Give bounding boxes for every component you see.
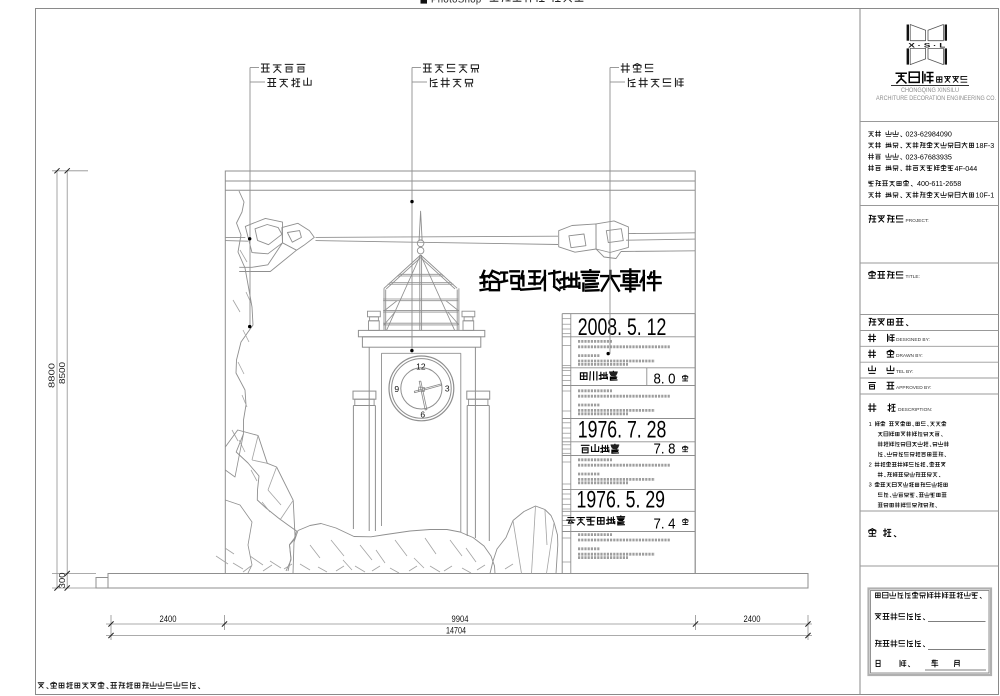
svg-text:DESCRIPTION:: DESCRIPTION: — [898, 407, 932, 413]
svg-text:400-611-2658: 400-611-2658 — [917, 179, 961, 188]
svg-text:300: 300 — [58, 572, 67, 589]
svg-text:7. 4: 7. 4 — [654, 515, 676, 532]
svg-text:023-67683935: 023-67683935 — [906, 152, 952, 161]
svg-text:9: 9 — [394, 384, 399, 394]
svg-text:ARCHITURE DECORATION ENGINEE: ARCHITURE DECORATION ENGINEERING CO. — [876, 95, 996, 102]
svg-text:3: 3 — [869, 483, 872, 489]
svg-text:8500: 8500 — [58, 361, 67, 384]
svg-text:APPROVED BY:: APPROVED BY: — [896, 385, 931, 391]
svg-text:2400: 2400 — [744, 614, 761, 624]
svg-text:023-62984090: 023-62984090 — [906, 130, 952, 139]
svg-text:DRAWN BY:: DRAWN BY: — [896, 353, 923, 359]
svg-text:14704: 14704 — [446, 626, 466, 636]
svg-text:12: 12 — [416, 361, 426, 371]
svg-text:1976. 5. 29: 1976. 5. 29 — [577, 487, 666, 514]
svg-text:9904: 9904 — [452, 614, 469, 624]
svg-text:2008. 5. 12: 2008. 5. 12 — [578, 314, 667, 341]
svg-text:7. 8: 7. 8 — [654, 440, 676, 457]
svg-text:X · S · L: X · S · L — [908, 42, 945, 49]
svg-text:8. 0: 8. 0 — [654, 371, 676, 388]
svg-text:6: 6 — [420, 410, 425, 420]
svg-text:1: 1 — [869, 422, 872, 428]
svg-text:2400: 2400 — [160, 614, 177, 624]
svg-text:CHONGQING XINSILU: CHONGQING XINSILU — [901, 87, 959, 94]
svg-text:PhotoShop: PhotoShop — [431, 0, 482, 5]
svg-text:8800: 8800 — [48, 362, 57, 388]
svg-text:DESIGNED BY:: DESIGNED BY: — [896, 337, 930, 343]
svg-text:4F-044: 4F-044 — [955, 164, 978, 173]
svg-text:10F-1: 10F-1 — [976, 191, 995, 200]
svg-text:18F-3: 18F-3 — [976, 141, 995, 150]
svg-text:3: 3 — [445, 384, 450, 394]
svg-text:PROJECT:: PROJECT: — [906, 218, 929, 224]
svg-text:TEL BY:: TEL BY: — [896, 369, 913, 375]
svg-text:TITLE:: TITLE: — [906, 274, 920, 280]
svg-text:2: 2 — [869, 462, 872, 468]
